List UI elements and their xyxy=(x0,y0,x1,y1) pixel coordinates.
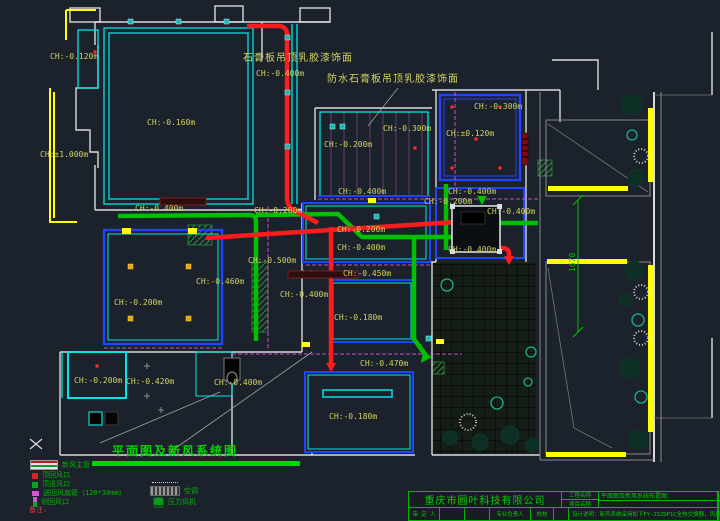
ceiling-height-label: CH:-0.460m xyxy=(196,278,244,286)
ceiling-height-label: CH:-0.500m xyxy=(248,257,296,265)
ceiling-height-label: CH:-0.200m xyxy=(424,198,472,206)
legend-label: 压力风机 xyxy=(168,499,196,506)
ceiling-height-label: CH:-0.400m xyxy=(214,379,262,387)
ac-dotted-line xyxy=(152,482,178,483)
ceiling-height-label: CH:-0.200m xyxy=(324,141,372,149)
ceiling-height-label: CH:-0.200m xyxy=(337,226,385,234)
return-vent-symbol xyxy=(32,473,38,479)
ceiling-height-label: CH:-0.180m xyxy=(334,314,382,322)
ceiling-height-label: CH:-0.200m xyxy=(74,377,122,385)
approver-value xyxy=(440,508,465,520)
title-block-row2: 审 定 人 专业负责人 校核 设计说明：新风系统采用松下FY-25ZDP1C全热… xyxy=(409,508,718,520)
design-note: 设计说明：新风系统采用松下FY-25ZDP1C全热交换器，风量250。 xyxy=(569,508,718,520)
item-name-label: 项目名称 xyxy=(562,500,598,507)
legend-label: 顶回风口 xyxy=(42,472,70,479)
legend-label: 顶送风口 xyxy=(42,481,70,488)
fixtures xyxy=(89,358,240,425)
ceiling-height-label: CH:-0.180m xyxy=(329,413,377,421)
pressure-fan-symbol xyxy=(153,497,164,508)
legend-item-return-vent: 顶回风口 xyxy=(32,472,70,479)
legend-item-ac: 空调 xyxy=(150,486,198,496)
ceiling-height-label: CH:-0.400m xyxy=(448,246,496,254)
legend-label: 新风主管 xyxy=(62,462,90,469)
signature-cell xyxy=(554,508,569,520)
ceiling-height-label: CH:-0.450m xyxy=(343,270,391,278)
legend-note-label: 备注: xyxy=(29,507,47,514)
ceiling-height-label: CH:-0.120m xyxy=(50,53,98,61)
ceiling-height-label: CH:-0.400m xyxy=(448,188,496,196)
ceiling-height-label: CH:-0.200m xyxy=(254,207,302,215)
ceiling-height-label: CH:-0.400m xyxy=(135,205,183,213)
ceiling-note-waterproof: 防水石膏板吊顶乳胶漆饰面 xyxy=(327,75,459,85)
title-block-row1: 重庆市圆叶科技有限公司 工程名称 项目名称 平面图及新风系统布置图 xyxy=(409,492,718,508)
ceiling-height-label: CH:-0.400m xyxy=(280,291,328,299)
main-duct-symbol xyxy=(30,460,58,470)
legend-label: 空调 xyxy=(184,488,198,495)
project-name-value: 平面图及新风系统布置图 xyxy=(599,492,718,501)
title-block: 重庆市圆叶科技有限公司 工程名称 项目名称 平面图及新风系统布置图 审 定 人 … xyxy=(408,491,719,521)
ceiling-height-label: CH:-0.200m xyxy=(114,299,162,307)
ceiling-height-label: CH:-0.400m xyxy=(256,70,304,78)
ac-unit-symbol xyxy=(150,486,180,496)
legend-label: 送回风扁管（120*30mm） xyxy=(43,490,126,497)
drawing-title: 平面图及新风系统图 xyxy=(112,442,238,459)
signature-cell xyxy=(465,508,490,520)
ceiling-height-label: CH:-0.160m xyxy=(147,119,195,127)
legend-item-pressure-fan: 压力风机 xyxy=(153,497,196,508)
ceiling-height-label: CH:-0.400m xyxy=(487,208,535,216)
ceiling-height-label: CH:-0.300m xyxy=(474,103,522,111)
title-block-field-labels: 工程名称 项目名称 xyxy=(562,492,599,507)
cad-canvas[interactable]: CH:-0.120m CH:±1.000m CH:-0.160m 石膏板吊顶乳胶… xyxy=(0,0,720,521)
legend-item-supply-vent: 顶送风口 xyxy=(32,481,70,488)
flat-duct-symbol xyxy=(32,491,39,496)
discipline-lead-label: 专业负责人 xyxy=(490,508,531,520)
ceiling-height-label: CH:±0.120m xyxy=(446,130,494,138)
supply-vent-symbol xyxy=(32,482,38,488)
item-name-value xyxy=(599,501,718,508)
checker-label: 校核 xyxy=(531,508,554,520)
ceiling-height-label: CH:±1.000m xyxy=(40,151,88,159)
ceiling-height-label: CH:-0.300m xyxy=(383,125,431,133)
legend-label: 侧回风口 xyxy=(41,499,69,506)
legend-item-flat-duct: 送回风扁管（120*30mm） xyxy=(32,490,126,497)
dimension-text: 1670 xyxy=(568,253,577,272)
ceiling-note-gypsum: 石膏板吊顶乳胶漆饰面 xyxy=(243,54,353,64)
ceiling-height-label: CH:-0.470m xyxy=(360,360,408,368)
ceiling-height-label: CH:-0.400m xyxy=(338,188,386,196)
approver-label: 审 定 人 xyxy=(409,508,440,520)
legend-item-main-duct: 新风主管 xyxy=(30,460,90,470)
ceiling-height-label: CH:-0.420m xyxy=(126,378,174,386)
title-block-field-values: 平面图及新风系统布置图 xyxy=(599,492,718,507)
ceiling-height-label: CH:-0.400m xyxy=(337,244,385,252)
company-name: 重庆市圆叶科技有限公司 xyxy=(409,492,562,507)
